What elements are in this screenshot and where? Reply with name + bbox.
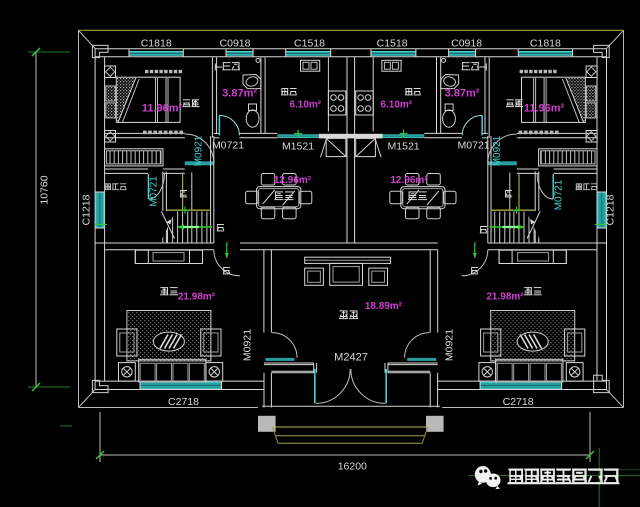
svg-text:M0721: M0721 [212,140,244,152]
svg-text:C1818: C1818 [530,38,561,50]
svg-text:C1218: C1218 [81,194,93,225]
svg-text:C0918: C0918 [451,38,482,50]
svg-text:16200: 16200 [338,461,367,473]
svg-text:11.96m²: 11.96m² [524,103,565,115]
svg-text:M0921: M0921 [242,329,254,361]
svg-text:M0721: M0721 [149,176,160,207]
svg-text:3.87m²: 3.87m² [445,88,480,100]
svg-text:M1521: M1521 [388,141,420,153]
svg-text:18.89m²: 18.89m² [365,301,403,312]
svg-text:M0921: M0921 [194,135,205,166]
svg-text:C2718: C2718 [503,396,534,408]
svg-text:12.96m²: 12.96m² [390,175,428,186]
svg-text:21.98m²: 21.98m² [486,292,524,303]
svg-text:M2427: M2427 [334,352,368,364]
svg-text:C1518: C1518 [377,38,408,50]
svg-text:11.96m²: 11.96m² [142,103,183,115]
svg-text:M1521: M1521 [282,141,314,153]
svg-text:M0721: M0721 [554,179,565,210]
svg-text:M0921: M0921 [492,135,503,166]
svg-text:C0918: C0918 [220,38,251,50]
svg-text:C1818: C1818 [141,38,172,50]
svg-text:12.96m²: 12.96m² [274,175,312,186]
svg-text:C1518: C1518 [294,38,325,50]
svg-text:C2718: C2718 [168,396,199,408]
svg-text:10760: 10760 [39,175,51,204]
svg-text:3.87m²: 3.87m² [222,88,257,100]
svg-text:6.10m²: 6.10m² [289,100,321,111]
svg-text:6.10m²: 6.10m² [380,100,412,111]
svg-text:M0721: M0721 [458,140,490,152]
svg-text:21.98m²: 21.98m² [178,292,216,303]
svg-text:C1218: C1218 [605,194,617,225]
svg-text:M0921: M0921 [444,329,456,361]
